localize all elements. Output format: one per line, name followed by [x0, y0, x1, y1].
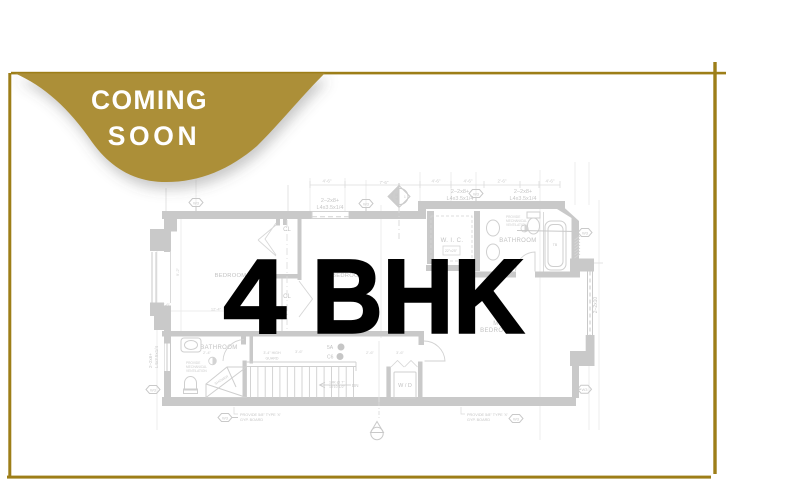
svg-text:7'-6": 7'-6" — [380, 180, 389, 185]
svg-text:12'-4": 12'-4" — [211, 307, 222, 312]
svg-text:W3: W3 — [513, 416, 520, 421]
svg-text:7'-6": 7'-6" — [162, 302, 171, 307]
svg-text:W3: W3 — [193, 200, 200, 205]
svg-text:VENTILATION: VENTILATION — [186, 369, 207, 373]
svg-text:2–2x6+: 2–2x6+ — [148, 353, 153, 368]
svg-text:W3: W3 — [222, 415, 229, 420]
svg-text:L4x3.5x1/4: L4x3.5x1/4 — [317, 205, 344, 211]
svg-text:W3: W3 — [582, 387, 589, 392]
svg-text:W3: W3 — [582, 230, 589, 235]
svg-text:W / D: W / D — [398, 383, 412, 389]
svg-text:SOON: SOON — [108, 121, 200, 151]
svg-text:CL: CL — [283, 227, 291, 233]
svg-text:W3: W3 — [150, 387, 157, 392]
svg-text:4'-6": 4'-6" — [464, 179, 473, 184]
svg-text:4'-6": 4'-6" — [432, 179, 441, 184]
svg-text:9'-2": 9'-2" — [175, 267, 180, 276]
svg-text:L4x3.5x1/4: L4x3.5x1/4 — [154, 345, 159, 368]
svg-text:COMING: COMING — [91, 85, 208, 115]
svg-text:1: 1 — [404, 195, 406, 199]
svg-text:2–2x8+: 2–2x8+ — [514, 189, 532, 195]
svg-text:10'10 1/2": 10'10 1/2" — [329, 385, 346, 389]
svg-text:BHK: BHK — [312, 239, 524, 356]
svg-text:A-11: A-11 — [395, 193, 399, 200]
svg-text:4'-6": 4'-6" — [546, 179, 555, 184]
svg-text:GUARD: GUARD — [266, 357, 279, 361]
svg-text:PROVIDE 5/8" TYPE 'X': PROVIDE 5/8" TYPE 'X' — [467, 413, 508, 417]
svg-text:14R @ 7": 14R @ 7" — [329, 381, 345, 385]
svg-text:2–2x10: 2–2x10 — [593, 297, 599, 314]
svg-text:GYP. BOARD: GYP. BOARD — [240, 418, 263, 422]
svg-text:2'-6": 2'-6" — [498, 179, 507, 184]
svg-text:PROVIDE 5/8" TYPE 'X': PROVIDE 5/8" TYPE 'X' — [240, 413, 281, 417]
svg-text:W3: W3 — [363, 201, 370, 206]
svg-text:TB: TB — [553, 243, 558, 247]
svg-text:3'-6": 3'-6" — [295, 349, 304, 354]
svg-text:4'-6": 4'-6" — [323, 179, 332, 184]
svg-text:DN: DN — [352, 383, 359, 388]
svg-text:2'-4": 2'-4" — [203, 350, 212, 355]
svg-text:2–2x8+: 2–2x8+ — [321, 198, 339, 204]
svg-text:GYP. BOARD: GYP. BOARD — [467, 418, 490, 422]
svg-text:4: 4 — [224, 239, 287, 356]
svg-text:2–2x8+: 2–2x8+ — [451, 189, 469, 195]
svg-text:W3: W3 — [473, 191, 480, 196]
